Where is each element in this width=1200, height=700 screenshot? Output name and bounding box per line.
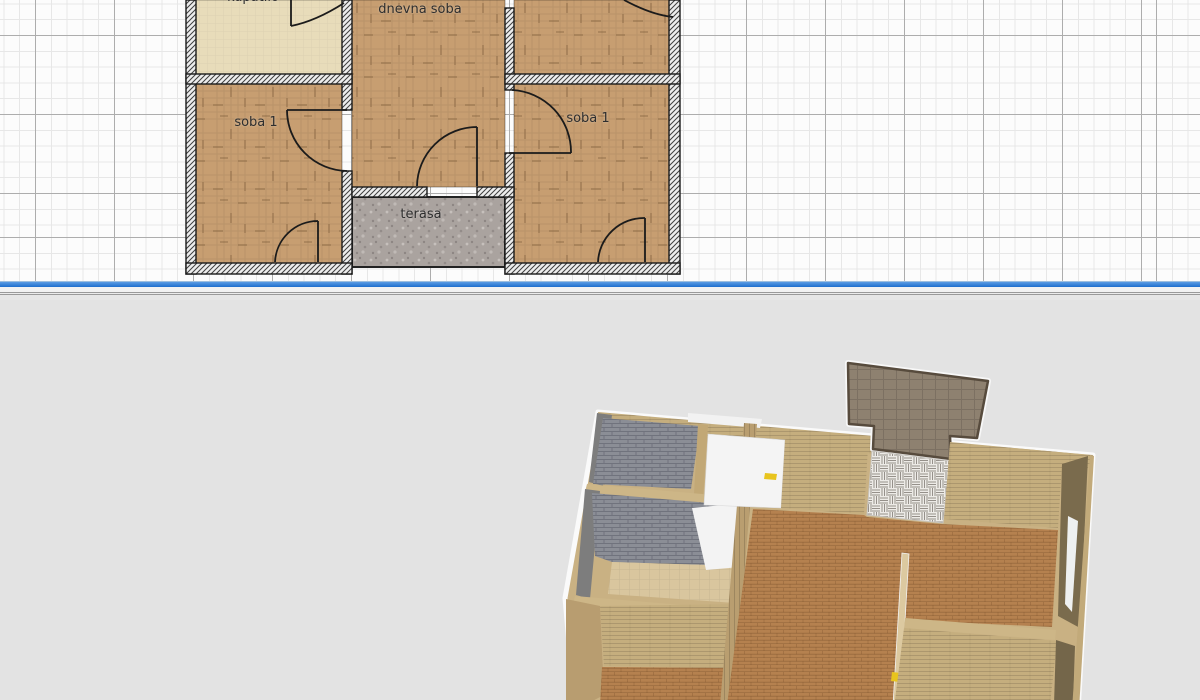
wall-topright-bottom[interactable] (505, 74, 680, 84)
plan-2d-canvas[interactable] (0, 0, 1200, 281)
room-label-dnevna-soba[interactable]: dnevna soba (378, 2, 461, 17)
view-3d-pane[interactable] (0, 300, 1200, 700)
room3-floor-3d (600, 667, 733, 700)
plan-rooms (196, 0, 669, 267)
wall-right[interactable] (669, 0, 680, 274)
room3-left-wall-3d (566, 599, 604, 700)
wall-dnevna-bottom-right[interactable] (477, 187, 514, 197)
tile-floor-3d (867, 451, 950, 523)
wall-center-left-bottom[interactable] (342, 171, 352, 274)
wall-center-right-bottom[interactable] (505, 153, 514, 274)
wall-left[interactable] (186, 0, 196, 274)
room-kupatilo[interactable] (196, 0, 342, 74)
room3-north-wall-3d (600, 604, 738, 668)
dnevna-north-wall-3d (781, 440, 868, 514)
room-label-soba1-left[interactable]: soba 1 (234, 115, 277, 130)
plan-2d-pane[interactable]: kupatilo dnevna soba soba 1 soba 1 teras… (0, 0, 1200, 281)
room-top-right[interactable] (514, 0, 669, 74)
lower-right-wall-face-3d (1054, 640, 1075, 700)
wall-bottom-left[interactable] (186, 263, 352, 274)
view-3d-canvas[interactable] (0, 300, 1200, 700)
white-door-3d (704, 434, 785, 508)
wall-kupatilo-bottom[interactable] (186, 74, 352, 84)
room-label-kupatilo[interactable]: kupatilo (227, 0, 279, 5)
wall-center-left-top[interactable] (342, 0, 352, 110)
wall-bottom-right[interactable] (505, 263, 680, 274)
room-dnevna-soba[interactable] (352, 0, 505, 187)
door-handle-yellow-icon (764, 473, 777, 480)
room1-floor-3d (593, 418, 700, 489)
wall-dnevna-bottom-left[interactable] (352, 187, 427, 197)
pane-splitter[interactable] (0, 287, 1200, 300)
room-label-terasa[interactable]: terasa (400, 207, 441, 222)
room-label-soba1-right[interactable]: soba 1 (566, 111, 609, 126)
